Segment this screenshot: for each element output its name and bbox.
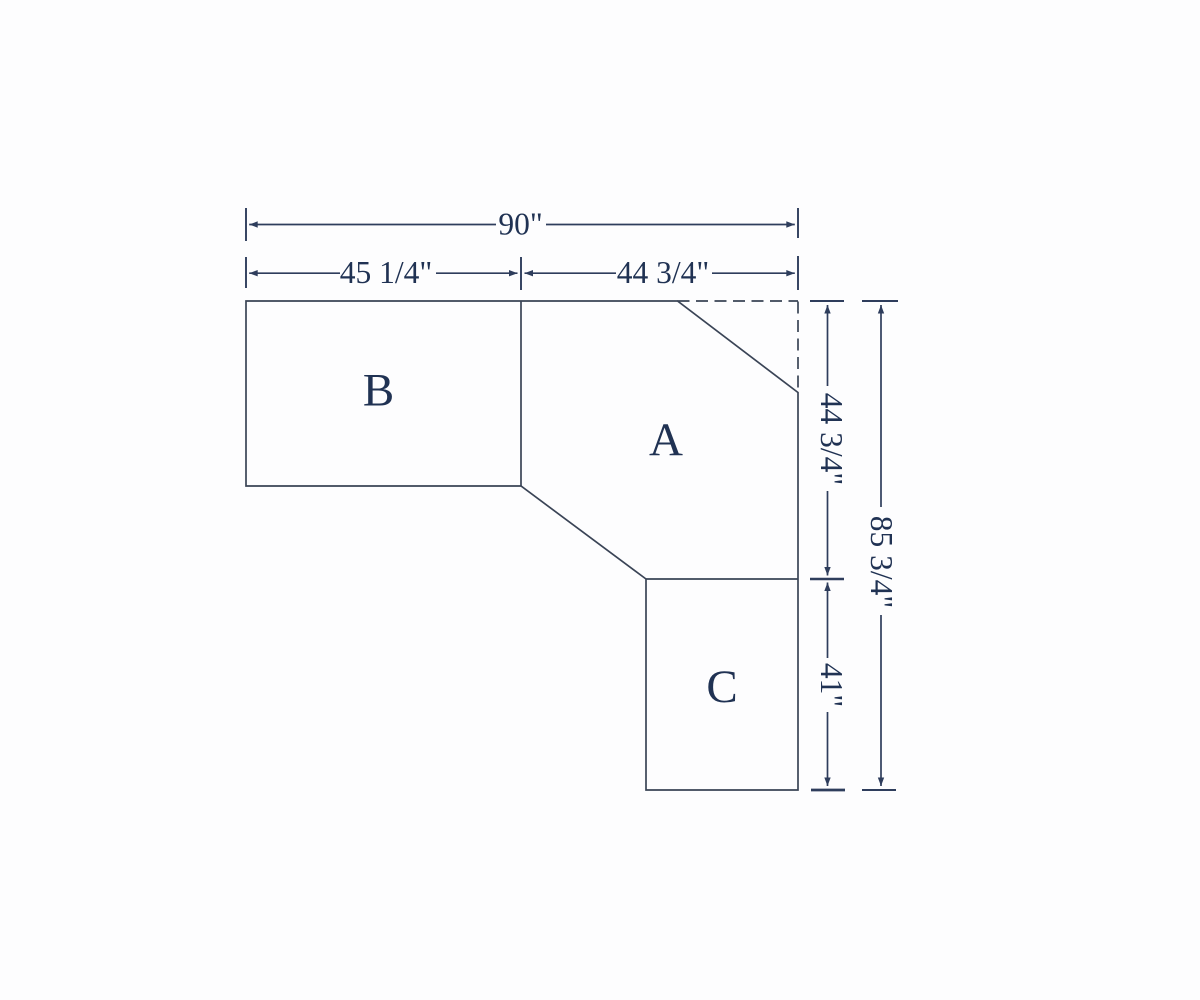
svg-text:41": 41" [814, 663, 849, 707]
svg-text:44 3/4": 44 3/4" [814, 393, 849, 486]
svg-text:45 1/4": 45 1/4" [340, 255, 433, 290]
svg-text:A: A [649, 414, 683, 466]
svg-text:B: B [363, 365, 394, 417]
svg-text:90": 90" [498, 207, 542, 242]
svg-text:C: C [706, 661, 737, 713]
svg-text:44 3/4": 44 3/4" [617, 255, 710, 290]
svg-text:85 3/4": 85 3/4" [864, 516, 899, 609]
